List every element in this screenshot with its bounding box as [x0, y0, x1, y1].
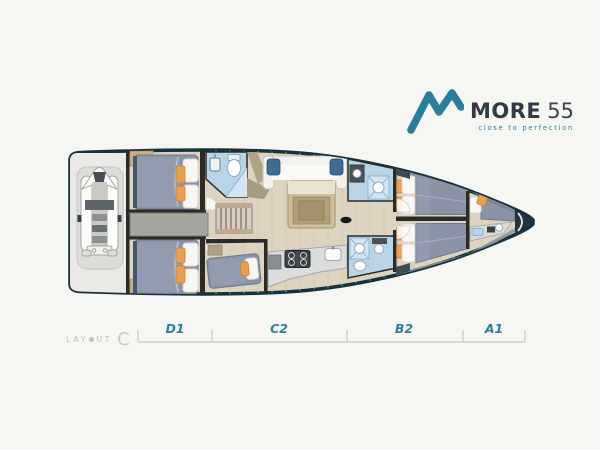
layout-dot-icon [89, 337, 94, 342]
fwd-head-wall-port [393, 166, 397, 212]
salon-table [288, 181, 335, 228]
layout-word-prefix: LAY [66, 335, 88, 344]
tender-garage [69, 153, 127, 293]
fwd-centerline-wall [396, 217, 468, 222]
mast [341, 217, 352, 223]
galley-sink [325, 249, 341, 261]
layout-word-suffix: UT [96, 335, 112, 344]
galley-cabinet [269, 255, 281, 269]
dimension-label-d1: D1 [165, 321, 184, 336]
aft-cabin-starboard-wall [128, 237, 206, 240]
dimension-label-c2: C2 [270, 321, 288, 336]
bow-cabin-wall [466, 191, 470, 249]
yacht-floor-plan: D1 C2 B2 A1 [0, 0, 600, 450]
layout-word: LAY UT [66, 335, 112, 344]
page: MORE 55 close to perfection [0, 0, 600, 450]
aft-cabin-starboard [133, 238, 205, 296]
stove [285, 251, 310, 268]
dinghy [78, 168, 122, 257]
aft-cabin-port-wall [128, 210, 206, 213]
engine-compartment [130, 213, 208, 236]
companionway-stairs [216, 204, 252, 233]
dimension-line [138, 330, 525, 342]
dimension-label-b2: B2 [395, 321, 413, 336]
layout-variant: C [117, 329, 130, 350]
layout-label: LAY UT C [66, 328, 130, 350]
fwd-head-wall-starboard [393, 230, 397, 272]
aft-cabin-port [133, 151, 205, 210]
garage-bulkhead-wall [126, 150, 130, 296]
dimension-label-a1: A1 [484, 321, 503, 336]
